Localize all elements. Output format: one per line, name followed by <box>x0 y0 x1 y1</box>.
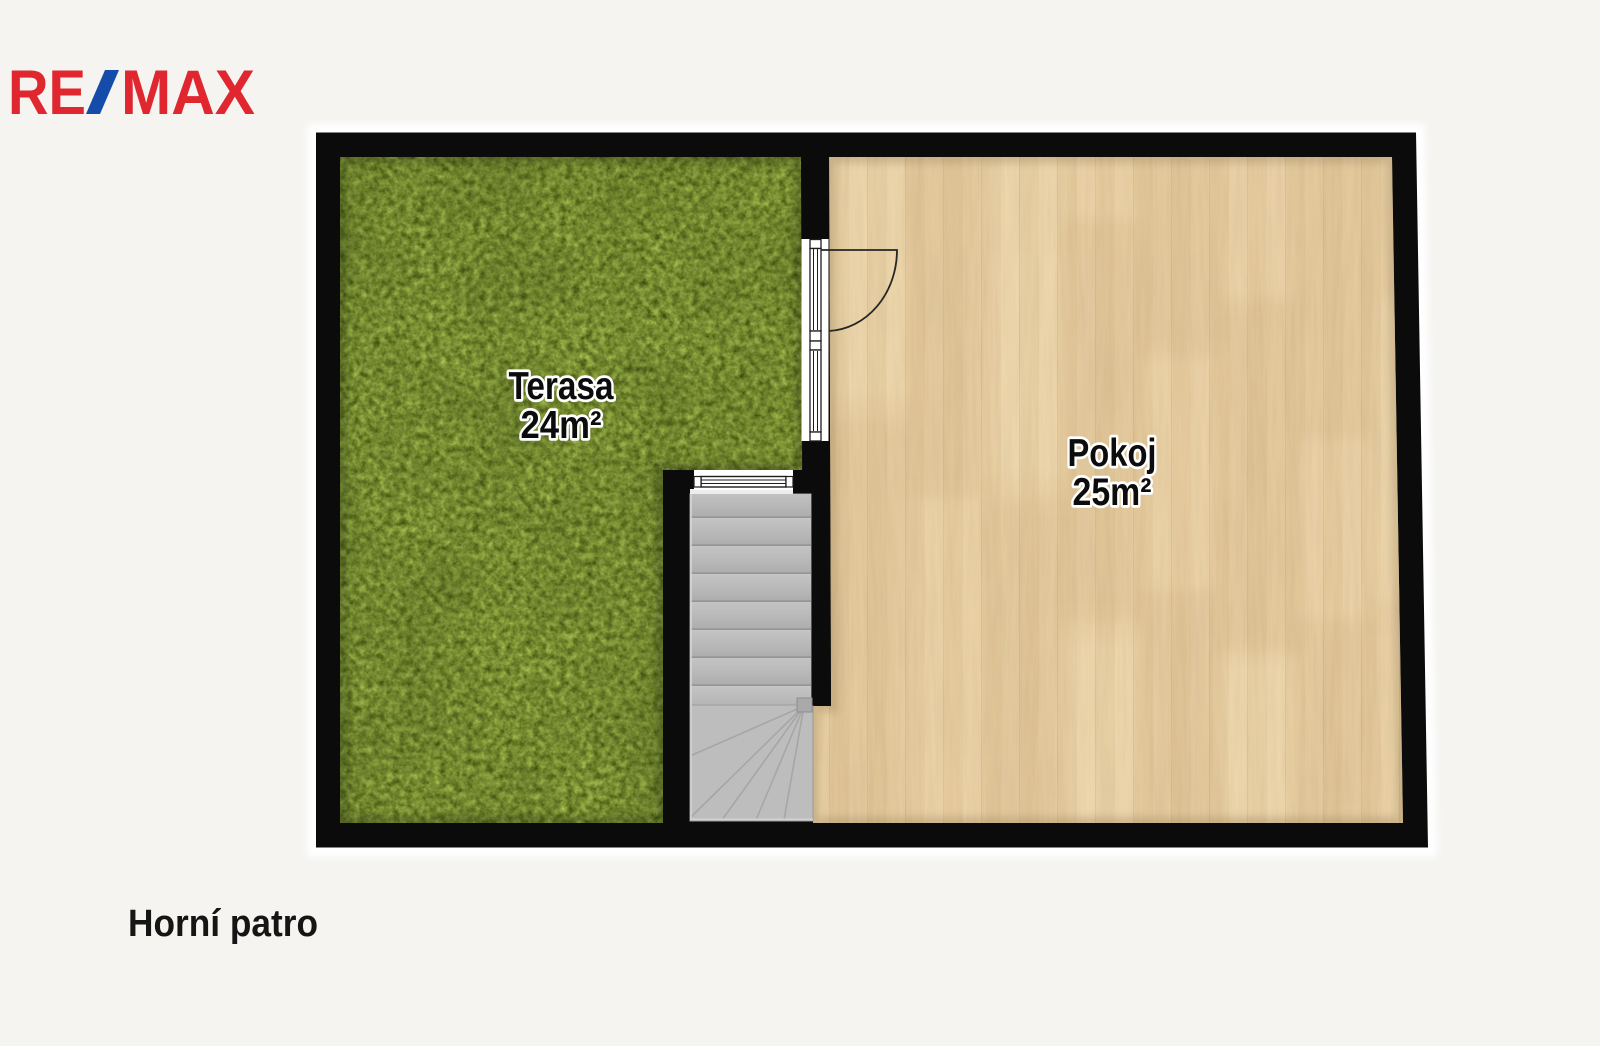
svg-text:Pokoj: Pokoj <box>1068 432 1157 475</box>
svg-text:24m²: 24m² <box>521 404 602 447</box>
svg-text:25m²: 25m² <box>1073 471 1152 514</box>
svg-text:Horní patro: Horní patro <box>128 903 318 945</box>
svg-text:Terasa: Terasa <box>509 365 614 408</box>
svg-text:RE: RE <box>8 58 86 128</box>
svg-text:MAX: MAX <box>121 58 255 128</box>
